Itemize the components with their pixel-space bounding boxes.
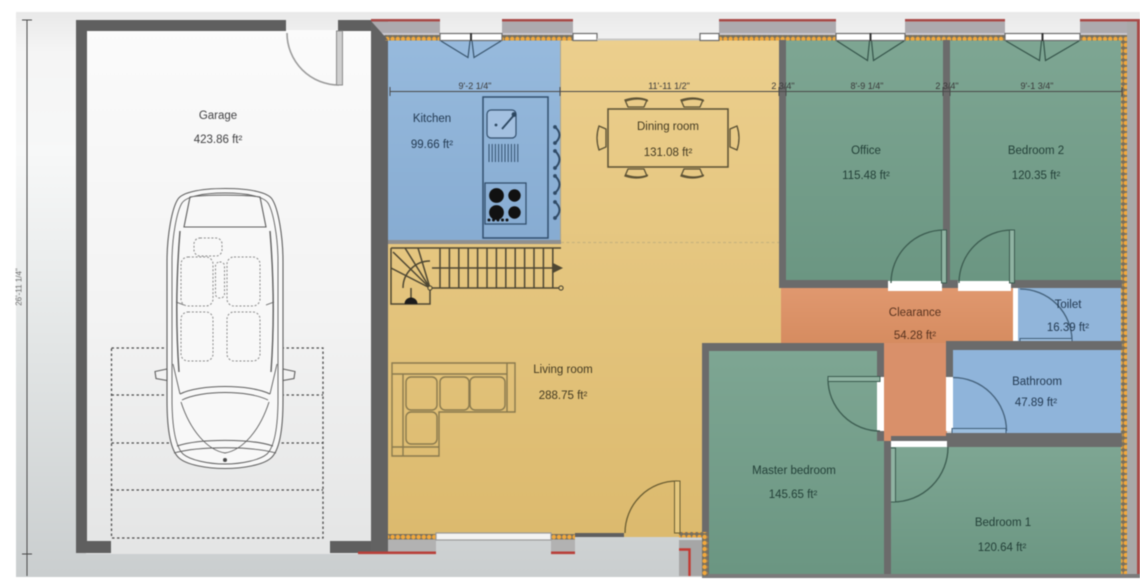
svg-text:423.86 ft²: 423.86 ft² (194, 134, 243, 146)
svg-text:131.08 ft²: 131.08 ft² (644, 147, 693, 159)
svg-text:120.35 ft²: 120.35 ft² (1012, 170, 1061, 182)
svg-text:Master bedroom: Master bedroom (752, 465, 836, 477)
svg-text:16.39 ft²: 16.39 ft² (1047, 322, 1089, 334)
svg-text:9'-2 1/4": 9'-2 1/4" (459, 81, 492, 91)
svg-text:Bedroom 2: Bedroom 2 (1008, 145, 1064, 157)
svg-text:26'-11 1/4": 26'-11 1/4" (15, 268, 24, 306)
svg-text:120.64 ft²: 120.64 ft² (978, 542, 1027, 554)
svg-text:2 3/4": 2 3/4" (935, 81, 958, 91)
svg-text:2 3/4": 2 3/4" (771, 81, 794, 91)
svg-text:Toilet: Toilet (1055, 299, 1083, 311)
svg-text:Dining room: Dining room (637, 121, 699, 133)
svg-text:Bathroom: Bathroom (1012, 376, 1062, 388)
svg-text:8'-9 1/4": 8'-9 1/4" (851, 81, 884, 91)
svg-text:47.89 ft²: 47.89 ft² (1015, 397, 1057, 409)
svg-text:11'-11 1/2": 11'-11 1/2" (648, 81, 690, 91)
svg-text:Garage: Garage (199, 110, 237, 122)
svg-text:Clearance: Clearance (889, 307, 941, 319)
svg-text:288.75 ft²: 288.75 ft² (539, 390, 588, 402)
svg-text:145.65 ft²: 145.65 ft² (769, 489, 818, 501)
svg-text:115.48 ft²: 115.48 ft² (842, 170, 890, 182)
svg-text:Living room: Living room (533, 364, 592, 376)
svg-text:Kitchen: Kitchen (413, 113, 451, 125)
svg-text:Office: Office (851, 145, 881, 157)
svg-text:9'-1 3/4": 9'-1 3/4" (1021, 81, 1054, 91)
svg-text:54.28 ft²: 54.28 ft² (894, 330, 936, 342)
svg-text:Bedroom 1: Bedroom 1 (975, 517, 1031, 529)
svg-text:99.66 ft²: 99.66 ft² (411, 139, 453, 151)
